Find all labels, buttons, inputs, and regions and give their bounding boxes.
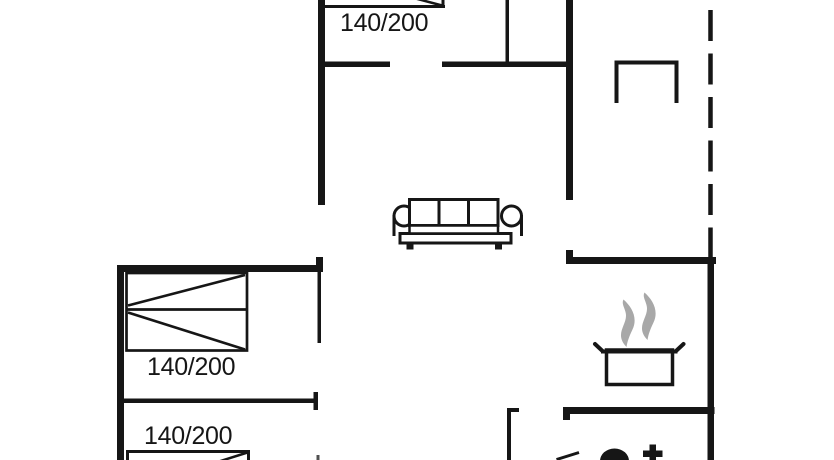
bed-size-label-bottom: 140/200 xyxy=(144,424,232,449)
dining-table-icon xyxy=(617,63,677,104)
wall-bottom-bedroom-top-cap xyxy=(314,392,319,410)
steam-icon xyxy=(621,293,656,348)
wall-bathroom-left-partition-cap xyxy=(507,408,519,412)
wall-top-bedroom-left xyxy=(318,0,325,205)
wall-closet-partition xyxy=(506,0,510,66)
wall-kitchen-top-cap xyxy=(566,250,573,258)
floor-plan: 140/200 140/200 140/200 xyxy=(0,0,834,460)
bed-size-label-middle: 140/200 xyxy=(147,355,235,380)
faucet-cross-icon xyxy=(643,445,663,460)
bed-size-label-top: 140/200 xyxy=(340,11,428,36)
bathroom-fixtures xyxy=(557,445,663,460)
wall-right-exterior xyxy=(708,257,715,460)
floor-plan-canvas xyxy=(0,0,834,460)
wall-middle-bedroom-top-cap xyxy=(316,257,323,266)
bed-icon-middle xyxy=(127,273,248,351)
wall-left-exterior xyxy=(117,265,124,460)
toilet-icon xyxy=(600,449,629,460)
wall-bottom-bedroom-top xyxy=(122,399,314,404)
wall-top-bedroom-right xyxy=(566,0,573,200)
wall-middle-bedroom-top xyxy=(117,265,323,272)
wall-bathroom-top xyxy=(563,407,715,414)
wall-bathroom-left-partition xyxy=(507,408,511,460)
wall-bottom-stub xyxy=(317,455,320,460)
faucet-line-icon xyxy=(557,453,580,460)
wall-kitchen-top xyxy=(566,257,716,264)
bed-icon-bottom xyxy=(126,451,250,460)
steam-wisp-right xyxy=(642,293,656,341)
wall-top-horizontal-left xyxy=(322,62,390,68)
wall-middle-bedroom-right-partition xyxy=(318,272,322,343)
sofa-icon xyxy=(394,200,522,250)
steam-wisp-left xyxy=(621,300,635,348)
cooking-pot-icon xyxy=(595,344,684,385)
bed-icon-top xyxy=(322,0,445,7)
wall-bathroom-top-cap xyxy=(563,414,570,420)
